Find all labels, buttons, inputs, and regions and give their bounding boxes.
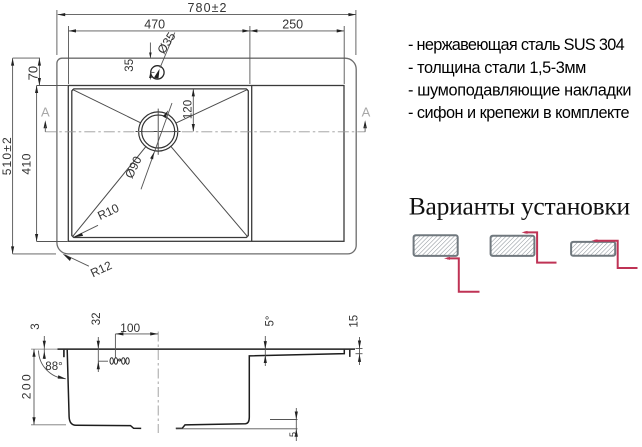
svg-text:250: 250 bbox=[282, 18, 303, 32]
svg-text:32: 32 bbox=[91, 313, 103, 326]
svg-text:- шумоподавляющие накладки: - шумоподавляющие накладки bbox=[408, 81, 632, 99]
svg-text:200: 200 bbox=[20, 374, 34, 399]
svg-text:Ø35: Ø35 bbox=[154, 29, 178, 56]
svg-text:15: 15 bbox=[348, 315, 360, 328]
svg-text:5°: 5° bbox=[265, 316, 277, 327]
svg-text:R12: R12 bbox=[88, 258, 114, 280]
svg-text:A: A bbox=[41, 104, 50, 119]
svg-text:120: 120 bbox=[183, 100, 195, 119]
svg-text:780±2: 780±2 bbox=[188, 1, 227, 15]
svg-text:88°: 88° bbox=[45, 361, 62, 373]
svg-text:- толщина стали 1,5-3мм: - толщина стали 1,5-3мм bbox=[408, 59, 586, 77]
svg-text:100: 100 bbox=[120, 321, 140, 335]
svg-text:510±2: 510±2 bbox=[0, 137, 14, 175]
svg-text:35: 35 bbox=[124, 59, 136, 72]
svg-text:A: A bbox=[362, 104, 371, 119]
svg-text:470: 470 bbox=[144, 18, 165, 32]
svg-text:410: 410 bbox=[20, 153, 34, 174]
svg-text:Ø90: Ø90 bbox=[122, 154, 145, 181]
svg-text:- сифон и крепежи в комплекте: - сифон и крепежи в комплекте bbox=[408, 104, 630, 122]
svg-text:- нержавеющая сталь SUS 304: - нержавеющая сталь SUS 304 bbox=[408, 36, 625, 54]
svg-text:5: 5 bbox=[288, 432, 298, 437]
svg-text:3: 3 bbox=[30, 323, 42, 329]
svg-text:70: 70 bbox=[25, 66, 40, 80]
svg-text:Варианты установки: Варианты установки bbox=[409, 192, 631, 221]
